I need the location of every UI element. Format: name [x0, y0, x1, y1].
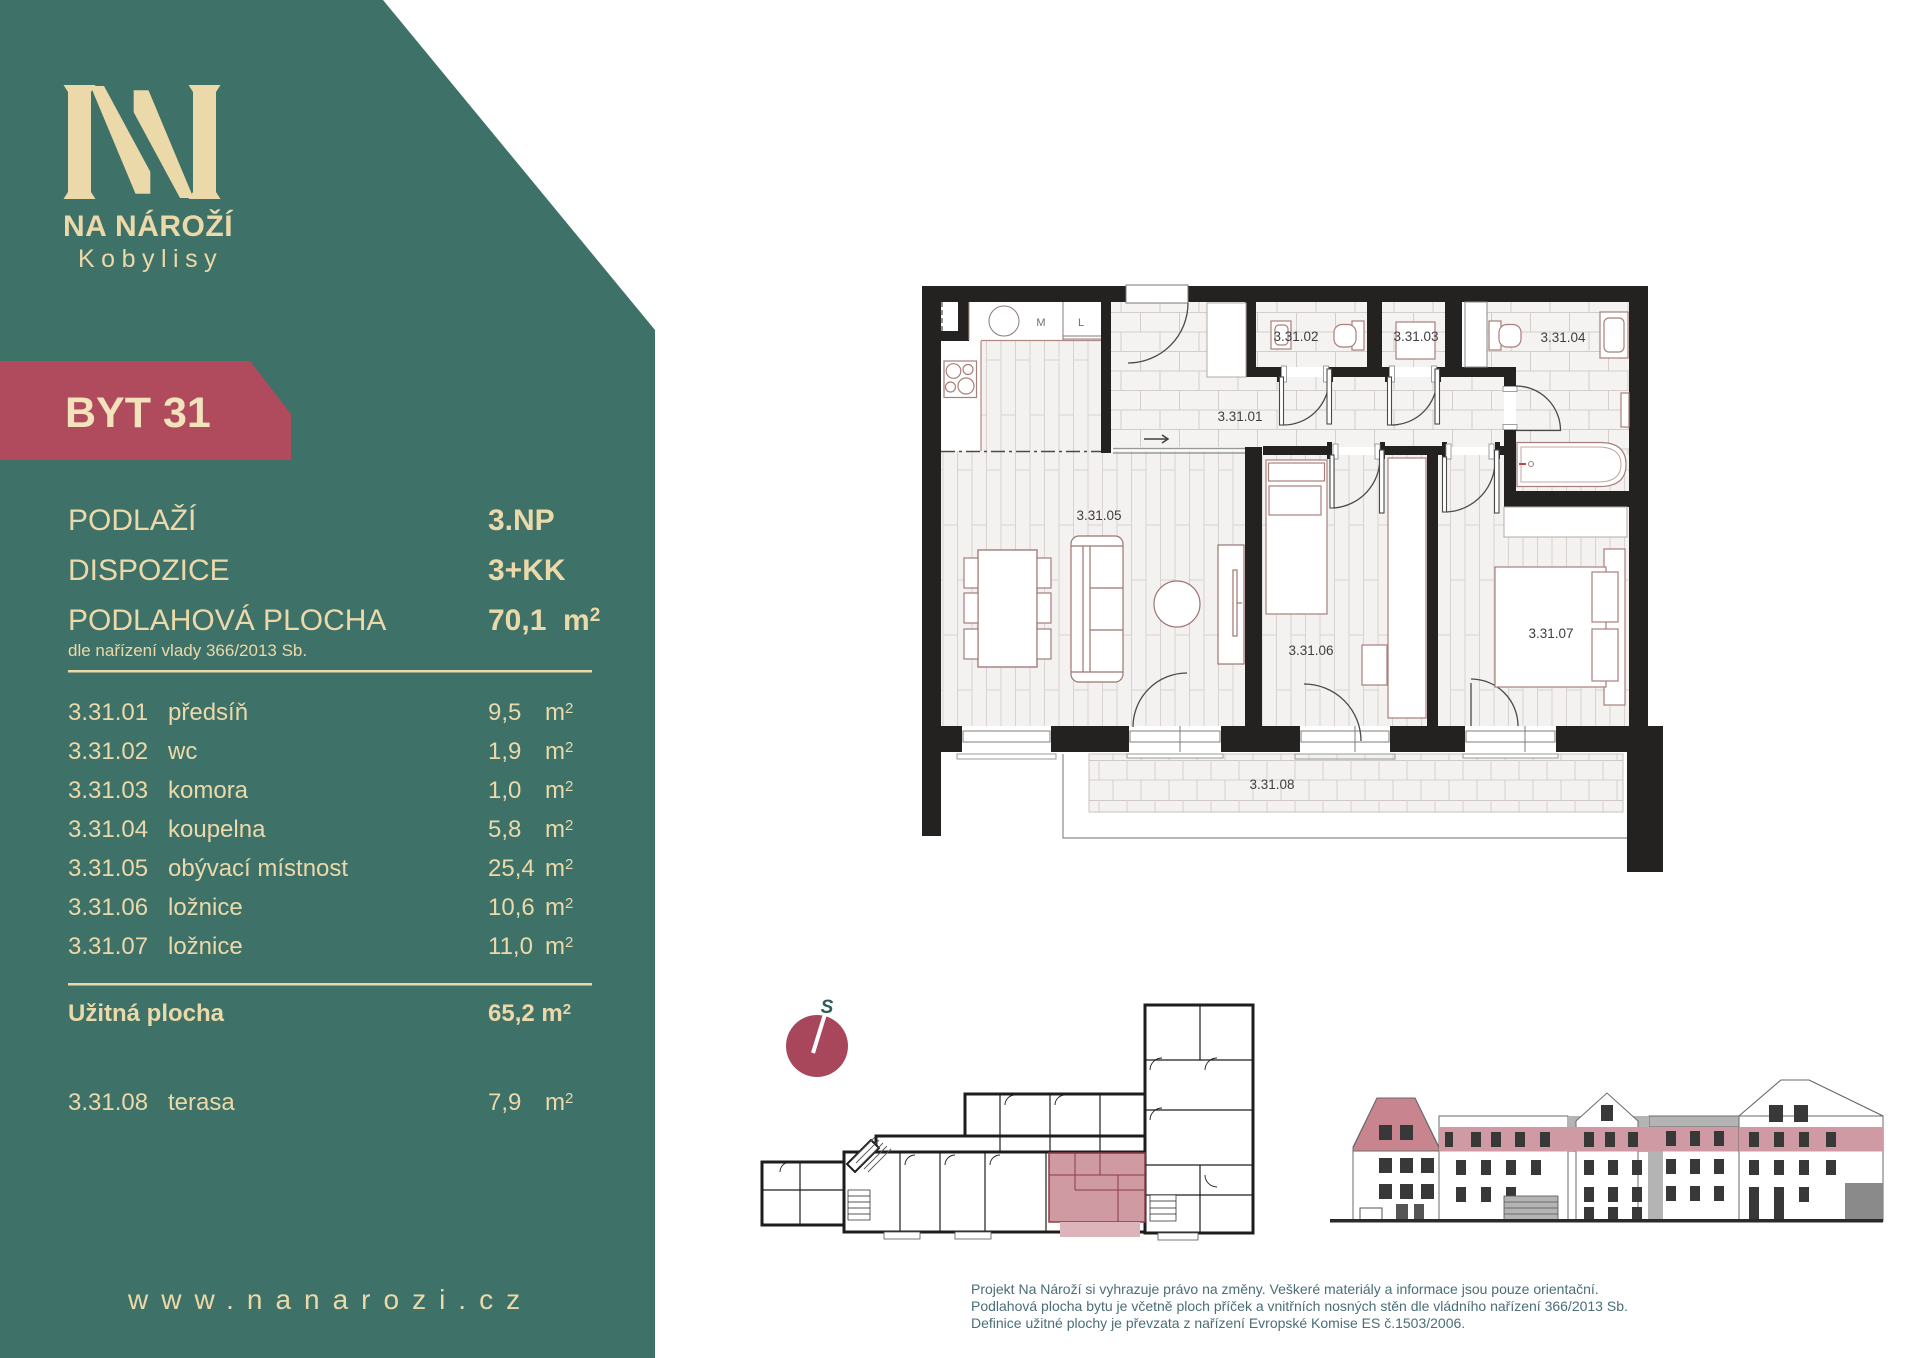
svg-text:M: M — [1036, 317, 1045, 329]
svg-text:3.31.04: 3.31.04 — [1540, 330, 1586, 345]
svg-text:3.31.07: 3.31.07 — [1528, 626, 1573, 641]
svg-text:3.31.02: 3.31.02 — [1273, 329, 1318, 344]
svg-text:S: S — [821, 997, 834, 1018]
svg-text:3.31.03: 3.31.03 — [1393, 329, 1438, 344]
svg-text:3.31.01: 3.31.01 — [1217, 409, 1262, 424]
svg-text:3.31.06: 3.31.06 — [1288, 643, 1333, 658]
svg-text:3.31.05: 3.31.05 — [1076, 508, 1121, 523]
svg-text:3.31.08: 3.31.08 — [1249, 777, 1294, 792]
svg-text:L: L — [1078, 317, 1084, 329]
